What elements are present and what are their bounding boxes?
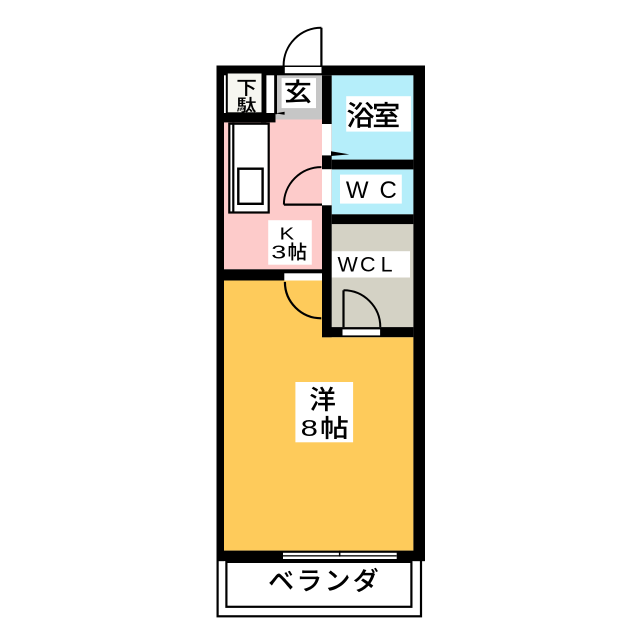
svg-text:W: W bbox=[346, 177, 369, 204]
svg-text:C: C bbox=[380, 177, 397, 204]
svg-text:3: 3 bbox=[271, 242, 286, 263]
svg-text:8: 8 bbox=[301, 415, 318, 441]
svg-text:L: L bbox=[381, 253, 393, 277]
svg-text:W: W bbox=[338, 253, 359, 277]
svg-text:C: C bbox=[360, 253, 376, 277]
